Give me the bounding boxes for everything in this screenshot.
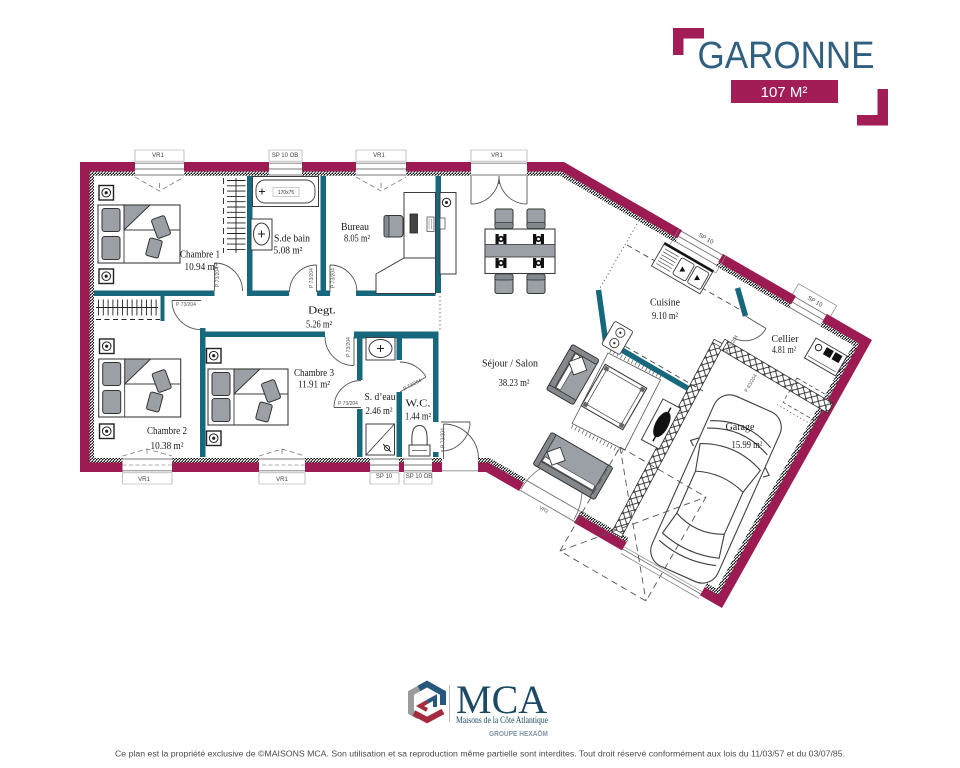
svg-text:170x75: 170x75 (278, 190, 295, 196)
svg-text:Degt.: Degt. (308, 306, 336, 317)
svg-text:107 M²: 107 M² (761, 84, 808, 101)
svg-text:SP 10: SP 10 (376, 474, 393, 480)
svg-text:5.08 m²: 5.08 m² (274, 246, 303, 257)
svg-text:Chambre 3: Chambre 3 (294, 368, 334, 379)
svg-text:38.23 m²: 38.23 m² (499, 378, 530, 389)
svg-text:Garage: Garage (726, 422, 755, 433)
svg-text:VR1: VR1 (152, 153, 164, 159)
svg-text:Séjour / Salon: Séjour / Salon (482, 359, 539, 370)
svg-text:10.94 m²: 10.94 m² (185, 262, 218, 273)
svg-text:P 73/204: P 73/204 (441, 428, 447, 448)
svg-text:Chambre 2: Chambre 2 (147, 426, 187, 437)
svg-text:VR1: VR1 (491, 153, 503, 159)
svg-text:P 73/204: P 73/204 (309, 268, 315, 288)
svg-text:VR1: VR1 (276, 477, 288, 483)
svg-text:VR1: VR1 (373, 153, 385, 159)
svg-text:Ce plan est la propriété exclu: Ce plan est la propriété exclusive de ©M… (115, 750, 845, 759)
svg-text:P 73/204: P 73/204 (176, 302, 196, 308)
svg-text:SP 10 OB: SP 10 OB (272, 153, 299, 159)
svg-text:VR1: VR1 (138, 477, 150, 483)
svg-text:Cellier: Cellier (772, 334, 800, 345)
svg-text:1.44 m²: 1.44 m² (405, 412, 431, 423)
svg-text:S. d’eau: S. d’eau (365, 392, 397, 403)
svg-text:P 73/204: P 73/204 (346, 337, 352, 357)
svg-text:10.38 m²: 10.38 m² (151, 441, 184, 452)
svg-text:11.91 m²: 11.91 m² (298, 380, 330, 391)
svg-text:GARONNE: GARONNE (698, 35, 875, 77)
svg-text:P 73/204: P 73/204 (338, 401, 358, 407)
svg-text:8.05 m²: 8.05 m² (344, 234, 370, 245)
svg-text:Bureau: Bureau (341, 222, 370, 233)
svg-text:5.26 m²: 5.26 m² (306, 320, 332, 331)
svg-text:Maisons de la Côte Atlantique: Maisons de la Côte Atlantique (456, 715, 548, 725)
svg-text:15.99 m²: 15.99 m² (732, 440, 763, 451)
svg-text:Chambre 1: Chambre 1 (180, 250, 220, 261)
svg-text:Cuisine: Cuisine (650, 298, 680, 309)
svg-text:9.10 m²: 9.10 m² (652, 311, 678, 322)
svg-text:GROUPE HEXAŌM: GROUPE HEXAŌM (489, 729, 548, 738)
svg-text:P 73/204: P 73/204 (331, 268, 337, 288)
svg-text:SP 10 OB: SP 10 OB (406, 474, 433, 480)
svg-text:S.de bain: S.de bain (274, 234, 311, 245)
svg-text:2.46 m²: 2.46 m² (366, 406, 393, 417)
svg-text:4.81 m²: 4.81 m² (772, 345, 796, 356)
svg-text:P 73/204: P 73/204 (215, 267, 221, 287)
svg-text:W.C.: W.C. (406, 399, 431, 410)
